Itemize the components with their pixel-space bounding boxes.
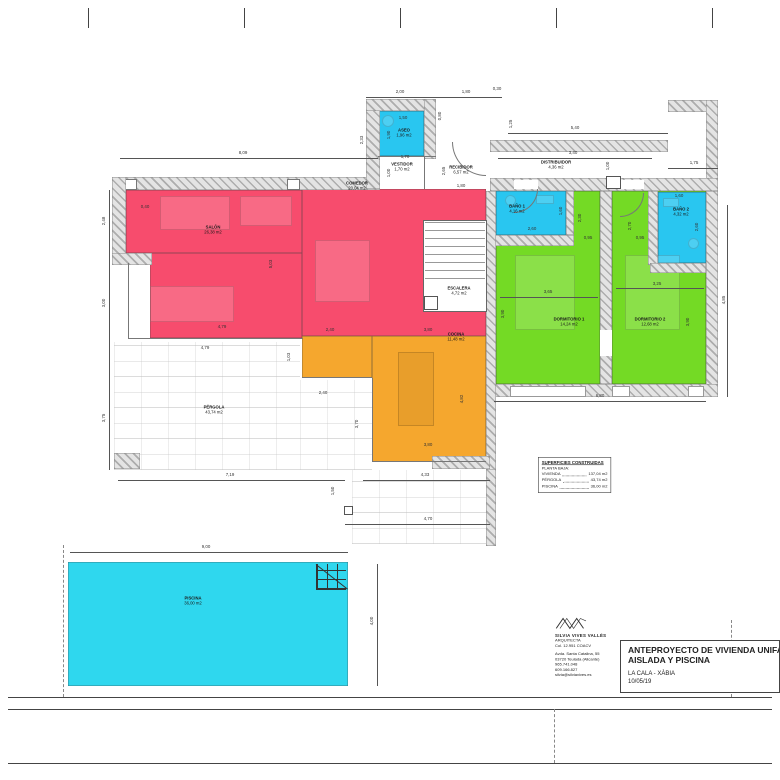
dimension-label: 1,60 [559, 207, 563, 216]
wall [366, 99, 380, 189]
kitchen-island-outline [398, 352, 434, 426]
dimension-label: 2,60 [528, 227, 537, 231]
dimension-line [508, 133, 668, 134]
dimension-label: 0,30 [493, 87, 502, 91]
dimension-label: 1,03 [287, 353, 291, 362]
bath-fixture [663, 198, 679, 207]
furniture-outline [150, 286, 234, 322]
bath-fixture [688, 238, 699, 249]
room-label-aseo: ASEO1,96 m2 [396, 129, 411, 138]
dimension-label: 2,33 [360, 136, 364, 145]
dimension-label: 5,03 [269, 260, 273, 269]
wall [648, 191, 658, 265]
room-label-recibidor: RECIBIDOR6,57 m2 [449, 166, 473, 175]
wall [706, 100, 718, 190]
room-label-bano1: BAÑO 14,16 m2 [509, 205, 525, 214]
dimension-line [70, 552, 348, 553]
dimension-label: 1,90 [387, 131, 391, 140]
dimension-label: 6,80 [596, 394, 605, 398]
stair-treads [425, 222, 485, 280]
dimension-label: 1,00 [606, 162, 610, 171]
wall [490, 140, 668, 152]
pergola-area [300, 380, 372, 470]
room-label-cocina: COCINA11,48 m2 [447, 333, 464, 342]
room-label-dormitorio2: DORMITORIO 212,68 m2 [635, 318, 666, 327]
partition-line [424, 156, 425, 189]
wall [706, 191, 718, 397]
window-opening [612, 386, 630, 397]
dimension-label: 4,70 [424, 517, 433, 521]
dimension-label: 4,33 [421, 473, 430, 477]
dimension-label: 7,19 [226, 473, 235, 477]
dimension-label: 3,75 [102, 414, 106, 423]
dimension-label: 9,00 [202, 545, 211, 549]
furniture-outline [240, 196, 292, 226]
project-location: LA CALA - XÀBIA [628, 671, 779, 679]
dimension-label: 3,25 [653, 282, 662, 286]
dimension-line [494, 401, 706, 402]
room-label-comedor: COMEDOR20,04 m2 [346, 182, 368, 191]
door-opening [600, 330, 612, 356]
dimension-label: 3,00 [102, 299, 106, 308]
wall [432, 456, 490, 469]
dimension-label: 2,60 [695, 223, 699, 232]
dimension-label: 2,40 [319, 391, 328, 395]
dimension-line [366, 97, 502, 98]
glass-wall-line [128, 263, 129, 339]
dimension-label: 4,79 [218, 325, 227, 329]
glass-wall-line [372, 378, 373, 462]
legend-row: PISCINA36,00 m2 [542, 484, 608, 490]
dimension-label: 3,40 [569, 151, 578, 155]
architect-block: SILVIA VIVES VALLÉS ARQUITECTA Col. 12.9… [555, 616, 626, 678]
dimension-label: 2,40 [326, 328, 335, 332]
pergola-area [352, 470, 486, 544]
title-block: ANTEPROYECTO DE VIVIENDA UNIFAMILIAR AIS… [620, 640, 780, 693]
wall [112, 177, 126, 265]
column [344, 506, 353, 515]
room-label-escalera: ESCALERA4,72 m2 [447, 287, 470, 296]
window-opening [510, 386, 586, 397]
dimension-label: 5,40 [571, 126, 580, 130]
dimension-label: 1,75 [690, 161, 699, 165]
room-label-bano2: BAÑO 24,32 m2 [673, 208, 689, 217]
door-opening [620, 180, 644, 189]
pillar [606, 176, 621, 189]
areas-legend: SUPERFICIES CONSTRUIDAS PLANTA BAJA: VIV… [538, 457, 611, 493]
wall [486, 191, 496, 470]
dimension-label: 3,80 [424, 328, 433, 332]
drawing-sheet: SALÓN26,38 m2COMEDOR20,04 m2COCINA11,48 … [0, 0, 780, 780]
glass-wall-line [302, 377, 372, 378]
dimension-line [120, 158, 378, 159]
dimension-label: 1,80 [457, 184, 466, 188]
dimension-label: 0,95 [636, 236, 645, 240]
wall [492, 235, 574, 246]
dimension-label: 1,00 [387, 169, 391, 178]
dimension-label: 1,50 [399, 116, 408, 120]
room-label-dormitorio1: DORMITORIO 114,24 m2 [554, 318, 585, 327]
dimension-label: 4,00 [370, 617, 374, 626]
stair-landing [424, 296, 438, 310]
dimension-label: 3,80 [424, 443, 433, 447]
dimension-line [616, 288, 704, 289]
dimension-line [377, 564, 378, 686]
dimension-label: 1,50 [331, 487, 335, 496]
sheet-divider-dashed [554, 709, 555, 763]
room-label-pergola: PÉRGOLA43,74 m2 [204, 406, 225, 415]
dimension-label: 3,90 [501, 310, 505, 319]
fold-mark [400, 8, 401, 28]
dimension-line [363, 480, 490, 481]
glass-wall-line [372, 461, 486, 462]
dimension-label: 8,09 [239, 151, 248, 155]
dimension-label: 3,70 [355, 420, 359, 429]
dimension-label: 1,80 [462, 90, 471, 94]
project-date: 10/05/19 [628, 679, 779, 687]
dimension-line [109, 190, 110, 470]
room-label-piscina: PISCINA36,00 m2 [184, 597, 202, 606]
dimension-line [345, 524, 490, 525]
dimension-label: 4,79 [201, 346, 210, 350]
dimension-line [500, 297, 598, 298]
dimension-label: 2,65 [442, 167, 446, 176]
dimension-line [727, 205, 728, 397]
dimension-label: 2,48 [102, 217, 106, 226]
dimension-label: 2,00 [396, 90, 405, 94]
project-title-line2: AISLADA Y PISCINA [628, 655, 779, 665]
dimension-label: 4,85 [722, 296, 726, 305]
fold-mark [712, 8, 713, 28]
dimension-label: 1,60 [675, 194, 684, 198]
glass-wall-line [128, 338, 303, 339]
cocina-area [302, 336, 372, 378]
dimension-label: 1,70 [401, 155, 410, 159]
wall [566, 191, 574, 235]
dimension-line [498, 158, 652, 159]
wall [424, 99, 436, 159]
sheet-border-line [8, 763, 772, 764]
dimension-line [668, 168, 718, 169]
fold-mark [244, 8, 245, 28]
wall-pillar-gap [287, 179, 300, 190]
project-title-line1: ANTEPROYECTO DE VIVIENDA UNIFAMILIAR [628, 645, 779, 655]
fold-mark [88, 8, 89, 28]
dimension-label: 0,95 [584, 236, 593, 240]
architect-logo [555, 616, 587, 630]
room-label-vestidor: VESTIDOR1,70 m2 [391, 163, 412, 172]
dimension-label: 1,25 [509, 120, 513, 129]
sheet-border-line [8, 697, 772, 698]
pool-area [68, 562, 348, 686]
sheet-border-line [8, 709, 772, 710]
room-label-salon: SALÓN26,38 m2 [204, 226, 222, 235]
architect-email: silvia@silviavives.es [555, 673, 626, 678]
dimension-label: 3,65 [544, 290, 553, 294]
bath-fixture [536, 195, 554, 204]
dimension-label: 2,30 [578, 214, 582, 223]
dimension-label: 4,82 [460, 395, 464, 404]
plot-boundary-dashed [63, 545, 64, 697]
dimension-label: 0,80 [438, 112, 442, 121]
wall [112, 177, 380, 190]
wall [112, 253, 152, 265]
room-label-distribuidor: DISTRIBUIDOR4,36 m2 [541, 161, 571, 170]
wall [650, 263, 706, 273]
dimension-label: 0,40 [141, 205, 150, 209]
dimension-label: 2,70 [628, 222, 632, 231]
furniture-outline [315, 240, 370, 302]
column [114, 453, 140, 469]
dimension-line [118, 480, 345, 481]
fold-mark [556, 8, 557, 28]
dimension-label: 3,90 [686, 318, 690, 327]
window-opening [688, 386, 704, 397]
door-opening [514, 180, 538, 189]
bath-fixture [382, 115, 394, 127]
